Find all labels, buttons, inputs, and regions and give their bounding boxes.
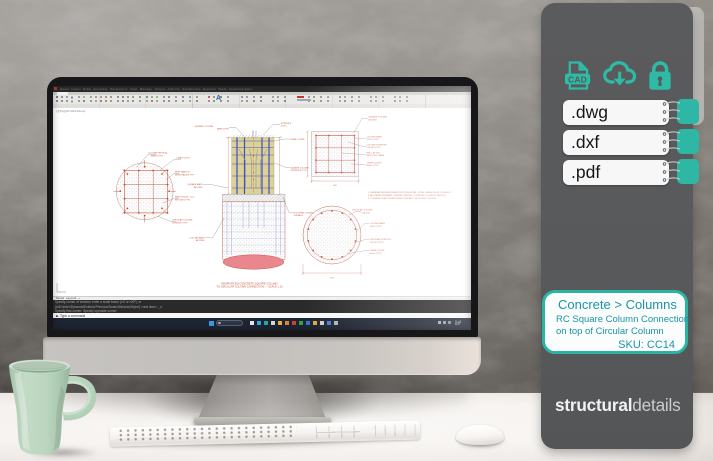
svg-text:CAD: CAD [568,74,587,84]
